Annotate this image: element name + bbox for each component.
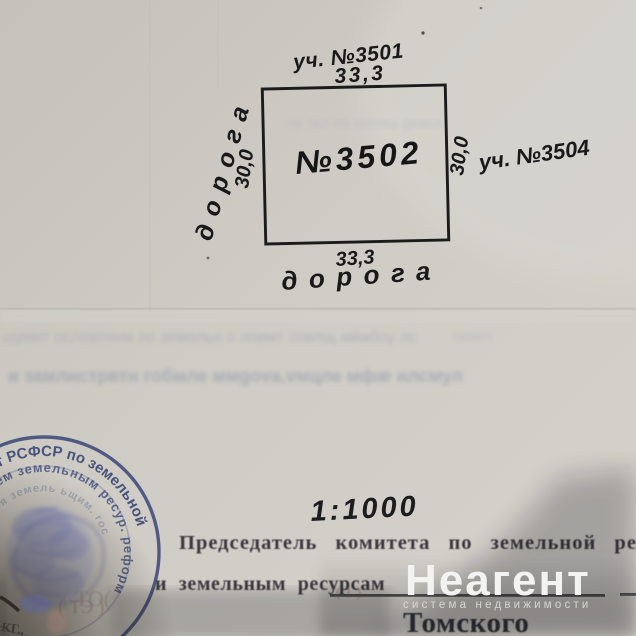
- svg-text:33,3: 33,3: [334, 62, 386, 88]
- svg-text:КГ.,: КГ.,: [1, 619, 26, 636]
- svg-text:пк ткл по кмтлш девсл: пк ткл по кмтлш девсл: [288, 115, 444, 132]
- svg-text:шумнт ословтннм по земельн: шумнт ословтннм по земельн о повмт сгмлщ…: [2, 329, 417, 346]
- svg-text:овмкч: овмкч: [452, 328, 493, 345]
- svg-text:( ТО(: ( ТО(: [62, 586, 111, 611]
- svg-text:Неагент: Неагент: [405, 556, 591, 605]
- svg-text:1:1000: 1:1000: [310, 490, 420, 528]
- svg-text:система недвижимости: система недвижимости: [403, 599, 592, 611]
- svg-text:и замлнстрвтн гобмле ммgovа: и замлнстрвтн гобмле ммgovа.vмцле мфæ нл…: [8, 366, 463, 386]
